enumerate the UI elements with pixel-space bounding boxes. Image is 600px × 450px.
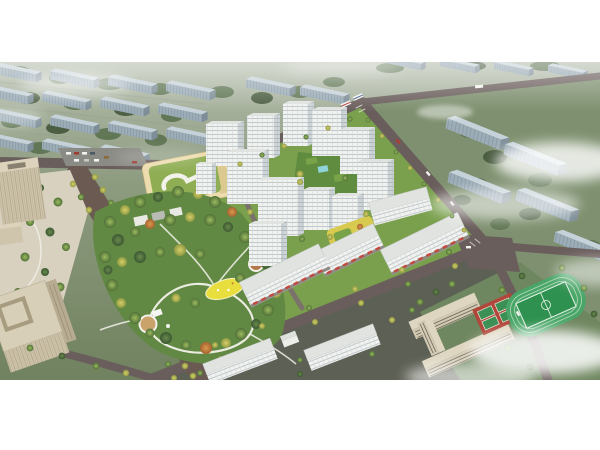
park-sculpture (166, 324, 170, 328)
office-podium (0, 222, 23, 246)
tower (249, 221, 287, 266)
car (94, 159, 99, 161)
community-building (196, 162, 216, 194)
rendering-svg: Bird's-eye masterplan rendering of a res… (0, 62, 600, 380)
top-haze (0, 62, 600, 112)
tower (303, 187, 335, 230)
car (466, 246, 471, 248)
page: Bird's-eye masterplan rendering of a res… (0, 0, 600, 450)
aerial-rendering: Bird's-eye masterplan rendering of a res… (0, 62, 600, 380)
